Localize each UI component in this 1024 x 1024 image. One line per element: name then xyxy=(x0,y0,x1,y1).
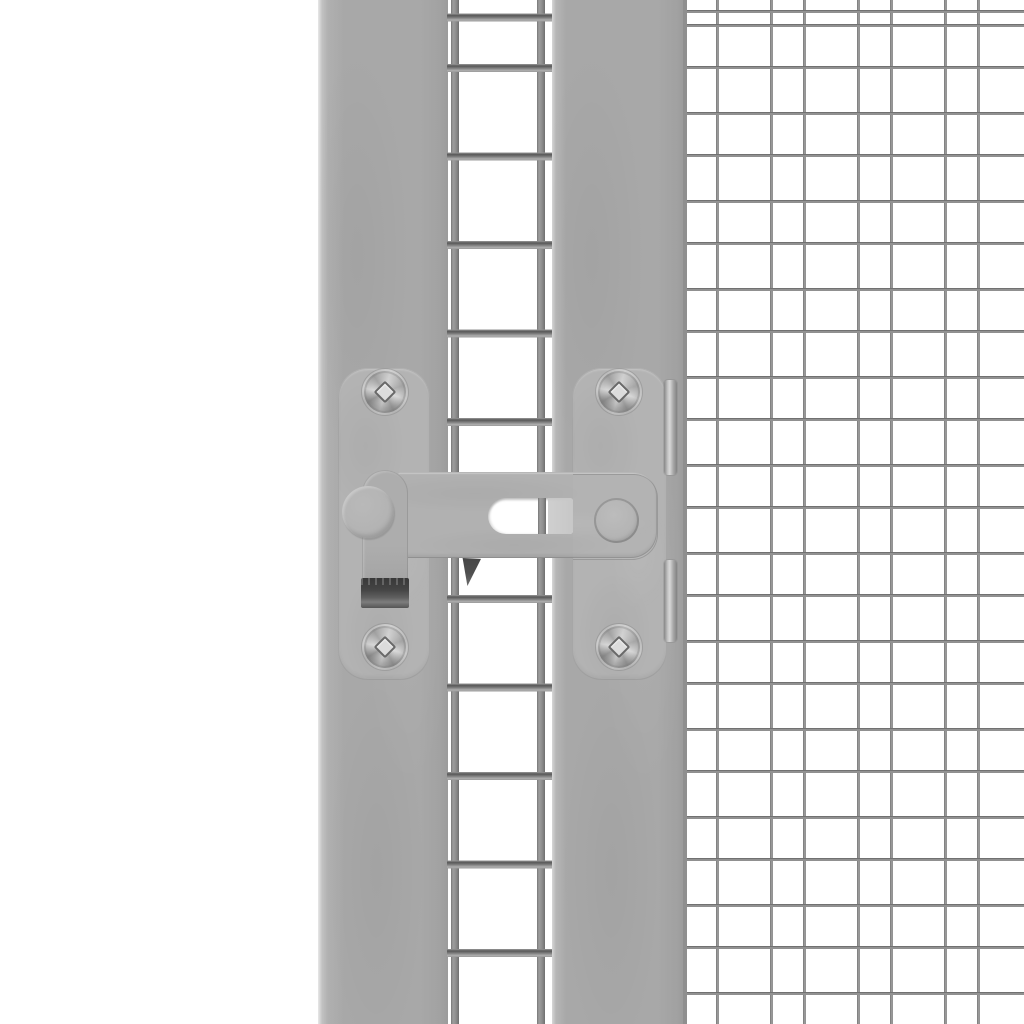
latch-hook-notch xyxy=(361,578,409,608)
wire-through-slot xyxy=(538,498,546,534)
product-photo xyxy=(0,0,1024,1024)
screw-bottom-left xyxy=(362,624,408,670)
screw-bottom-right xyxy=(596,624,642,670)
mesh-clip-bottom xyxy=(664,560,677,642)
slot-shadow xyxy=(548,498,573,534)
screw-top-left xyxy=(362,369,408,415)
fine-mesh-panel xyxy=(683,0,1024,1024)
latch-arm-slot xyxy=(488,498,573,534)
latch-pivot-knob xyxy=(342,486,394,538)
latch-pin-knob xyxy=(594,498,639,543)
screw-top-right xyxy=(596,369,642,415)
mesh-clip-top xyxy=(664,380,677,475)
